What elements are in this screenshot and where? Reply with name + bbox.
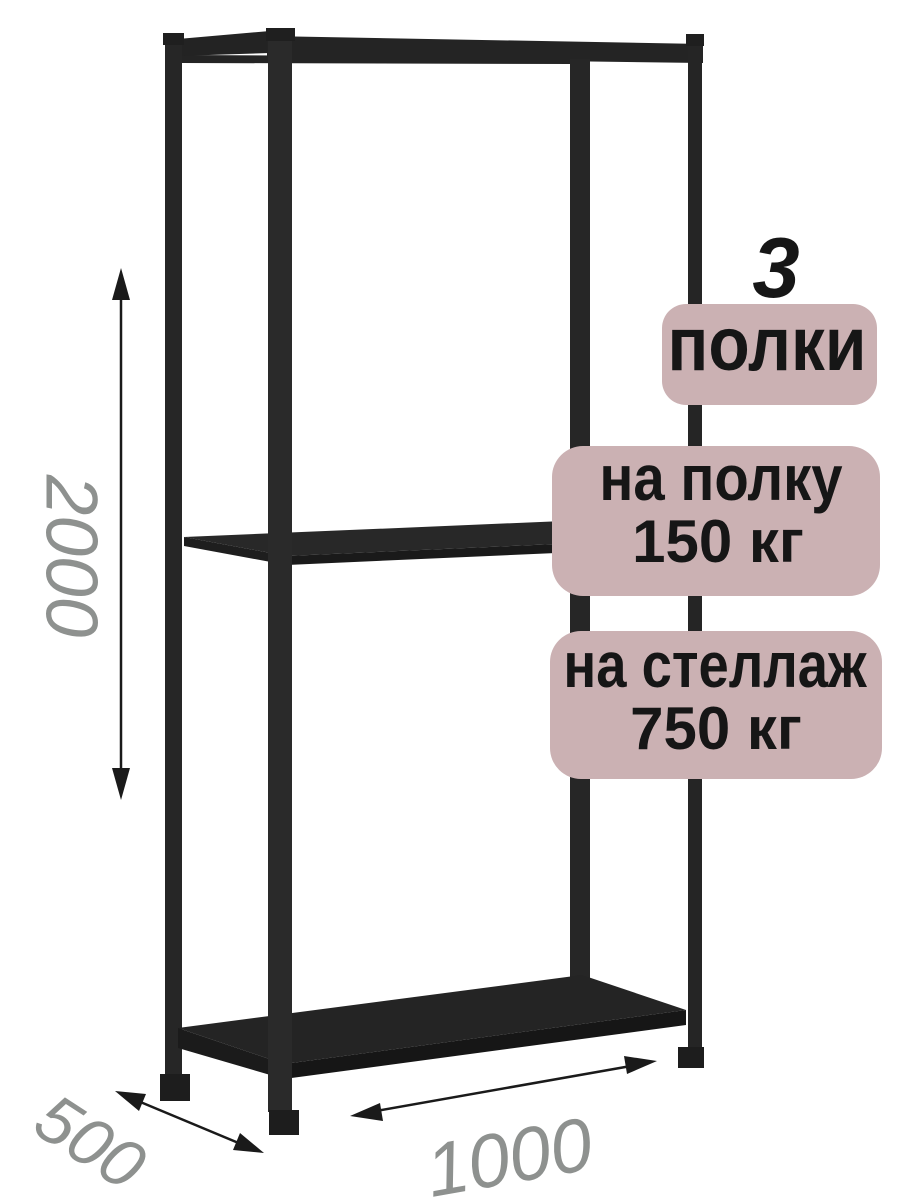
svg-text:на полку: на полку <box>599 442 843 514</box>
svg-text:750 кг: 750 кг <box>630 695 802 762</box>
svg-text:2000: 2000 <box>31 474 112 637</box>
svg-text:150 кг: 150 кг <box>632 508 804 575</box>
svg-text:1000: 1000 <box>420 1101 599 1200</box>
svg-text:полки: полки <box>668 302 867 387</box>
svg-text:на стеллаж: на стеллаж <box>563 629 867 701</box>
